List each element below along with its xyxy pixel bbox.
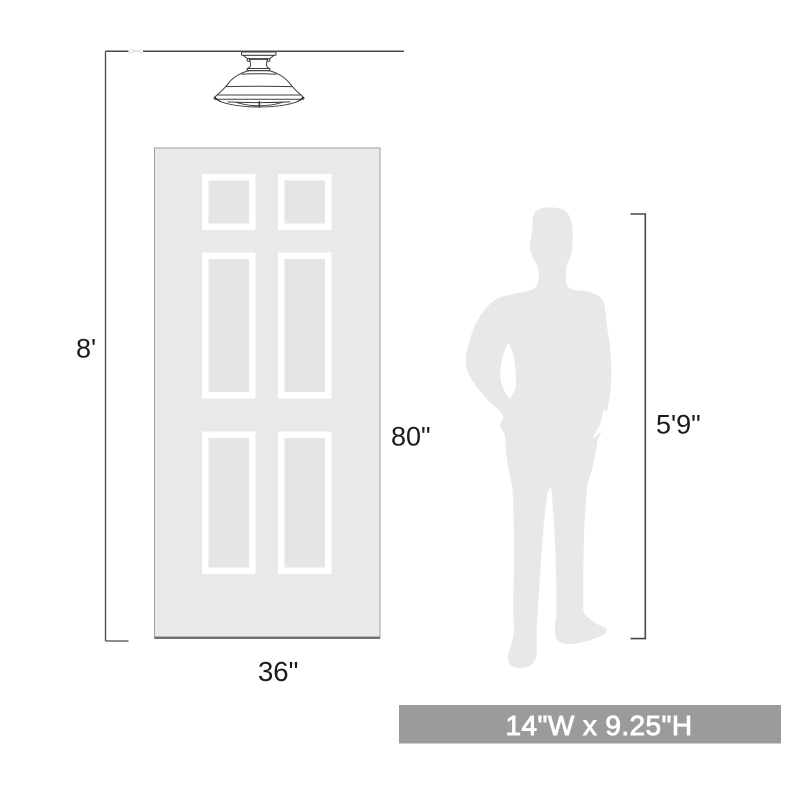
svg-text:80": 80" xyxy=(391,422,431,452)
svg-text:8': 8' xyxy=(76,334,96,364)
svg-text:5'9": 5'9" xyxy=(656,410,701,440)
svg-text:36": 36" xyxy=(258,656,298,687)
svg-text:14"W x 9.25"H: 14"W x 9.25"H xyxy=(506,710,693,741)
